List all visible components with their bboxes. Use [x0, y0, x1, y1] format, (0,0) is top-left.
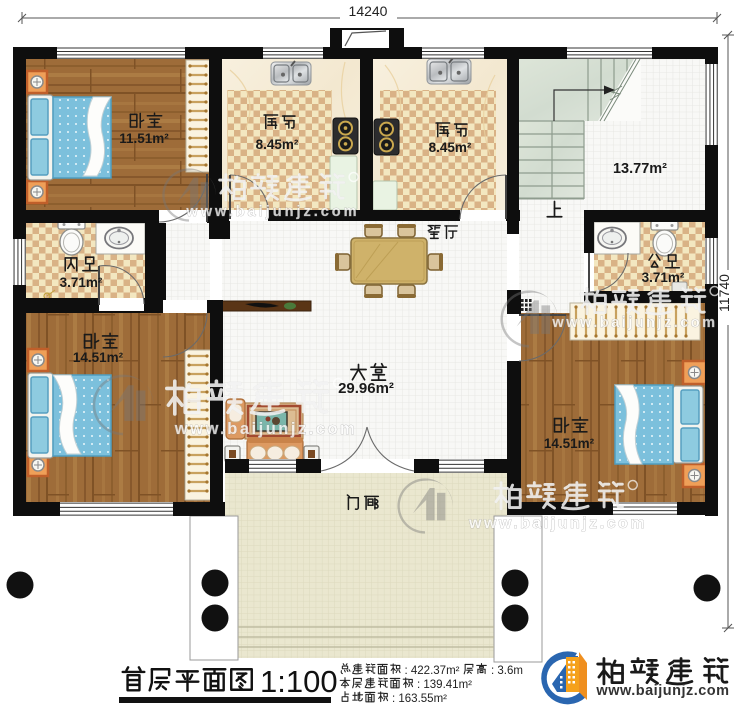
svg-text:www.baijunjz.com: www.baijunjz.com	[595, 683, 729, 699]
svg-text:www.baijunjz.com: www.baijunjz.com	[174, 420, 357, 438]
svg-text:: 139.41m²: : 139.41m²	[417, 679, 472, 691]
svg-text:www.baijunjz.com: www.baijunjz.com	[468, 515, 647, 532]
svg-text:14240: 14240	[349, 3, 388, 19]
svg-text:14.51m²: 14.51m²	[544, 436, 595, 451]
svg-text:: 422.37m²: : 422.37m²	[405, 665, 460, 677]
svg-text:3.71m²: 3.71m²	[60, 275, 103, 290]
svg-text:www.baijunjz.com: www.baijunjz.com	[185, 204, 359, 220]
svg-text:8.45m²: 8.45m²	[256, 137, 299, 152]
svg-text:www.baijunjz.com: www.baijunjz.com	[551, 315, 717, 331]
svg-text:3.71m²: 3.71m²	[642, 270, 685, 285]
svg-text:1:100: 1:100	[260, 664, 338, 699]
svg-text:: 3.6m: : 3.6m	[491, 665, 523, 677]
svg-text:8.45m²: 8.45m²	[429, 140, 472, 155]
svg-text:29.96m²: 29.96m²	[338, 380, 394, 397]
svg-text:13.77m²: 13.77m²	[613, 161, 667, 177]
svg-text:11740: 11740	[716, 274, 732, 312]
svg-text:: 163.55m²: : 163.55m²	[392, 693, 447, 705]
svg-text:11.51m²: 11.51m²	[119, 131, 169, 146]
svg-text:14.51m²: 14.51m²	[73, 350, 124, 365]
